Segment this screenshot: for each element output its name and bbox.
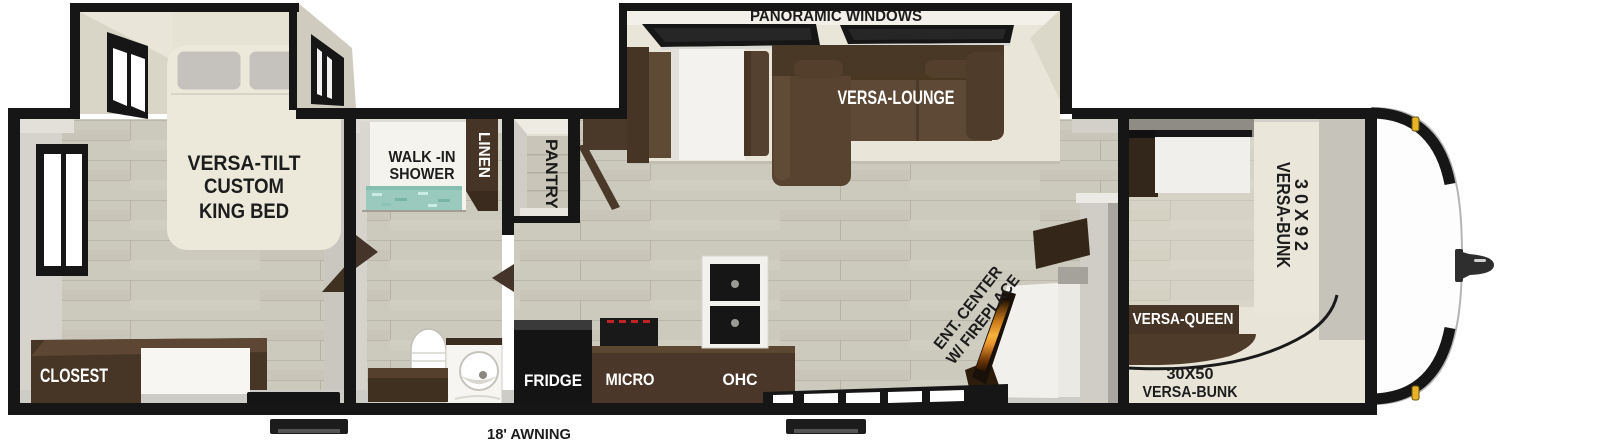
svg-text:18' AWNING: 18' AWNING — [487, 426, 571, 443]
svg-text:VERSA-TILT: VERSA-TILT — [188, 152, 301, 175]
svg-text:CLOSEST: CLOSEST — [40, 366, 108, 387]
svg-text:VERSA-BUNK: VERSA-BUNK — [1273, 162, 1293, 268]
svg-text:VERSA-LOUNGE: VERSA-LOUNGE — [838, 88, 955, 109]
svg-text:FRIDGE: FRIDGE — [524, 371, 582, 390]
svg-text:OHC: OHC — [723, 371, 758, 389]
svg-text:KING BED: KING BED — [199, 200, 289, 223]
svg-text:WALK -IN: WALK -IN — [389, 149, 456, 166]
svg-text:VERSA-BUNK: VERSA-BUNK — [1143, 384, 1239, 401]
svg-text:MICRO: MICRO — [606, 371, 655, 389]
svg-text:CUSTOM: CUSTOM — [204, 175, 284, 198]
svg-text:VERSA-QUEEN: VERSA-QUEEN — [1133, 311, 1234, 328]
svg-text:30X50: 30X50 — [1167, 366, 1214, 383]
svg-text:SHOWER: SHOWER — [390, 166, 455, 183]
svg-text:LINEN: LINEN — [475, 132, 492, 178]
svg-text:PANTRY: PANTRY — [542, 139, 561, 210]
